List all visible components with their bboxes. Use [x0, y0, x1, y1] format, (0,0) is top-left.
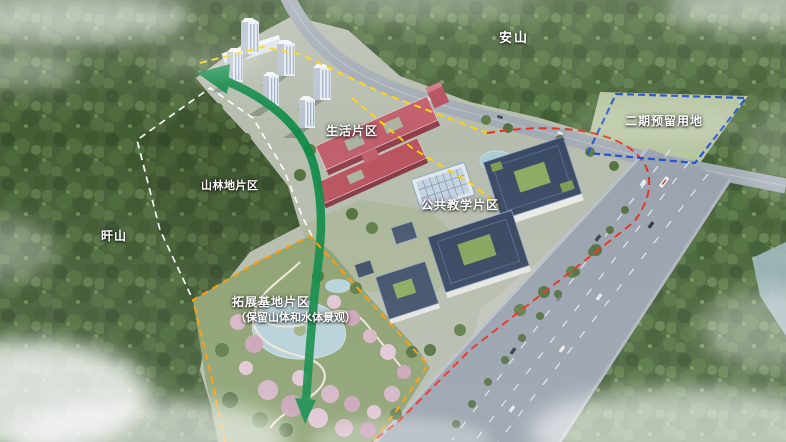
aerial-scene — [0, 0, 786, 442]
atmosphere-veil — [0, 0, 786, 442]
masterplan-rendering: 安山 二期预留用地 生活片区 山林地片区 旰山 公共教学片区 拓展基地片区 （保… — [0, 0, 786, 442]
